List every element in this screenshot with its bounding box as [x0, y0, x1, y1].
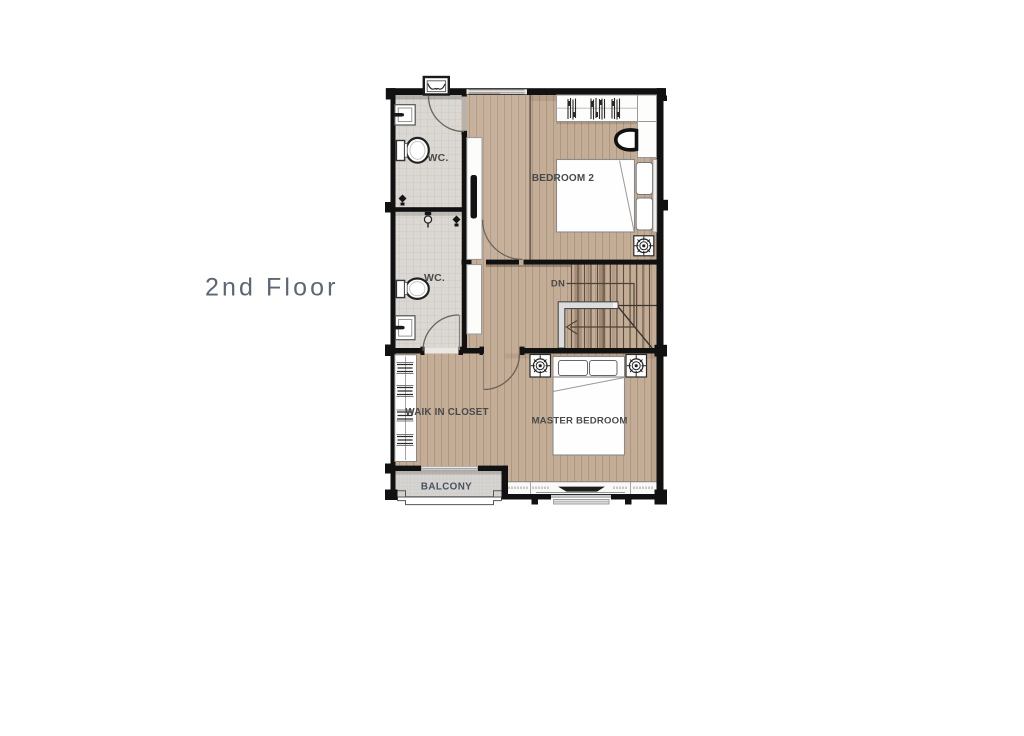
svg-text:BALCONY: BALCONY	[421, 482, 472, 493]
svg-text:DN: DN	[551, 279, 565, 290]
svg-text:2nd Floor: 2nd Floor	[205, 274, 339, 302]
svg-text:WC.: WC.	[427, 152, 448, 164]
svg-text:WAIK IN CLOSET: WAIK IN CLOSET	[405, 407, 488, 418]
svg-text:BEDROOM 2: BEDROOM 2	[532, 173, 595, 184]
svg-text:MASTER BEDROOM: MASTER BEDROOM	[531, 416, 627, 427]
